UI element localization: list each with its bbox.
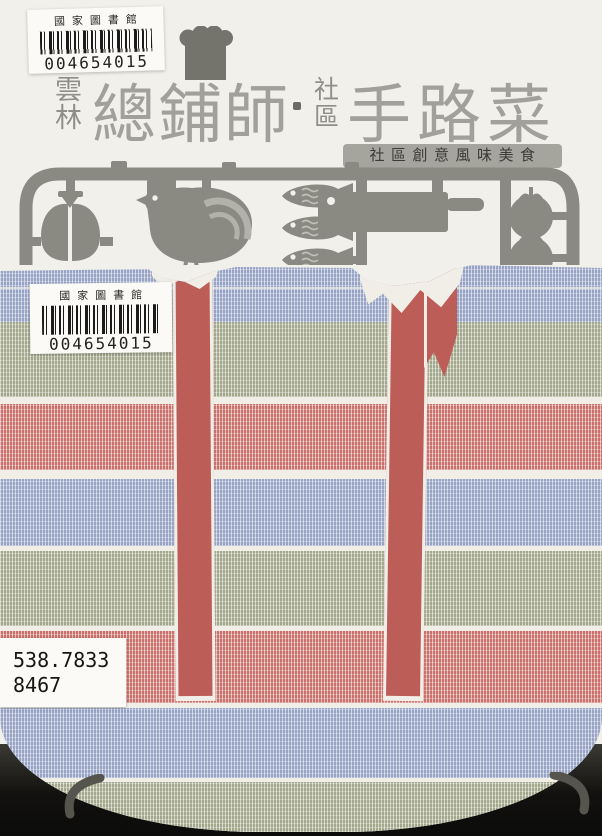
call-number-author: 8467 xyxy=(13,673,126,698)
cleaver-icon xyxy=(318,178,484,232)
separator-dot xyxy=(293,102,301,110)
bag-strap-left xyxy=(172,265,215,701)
rooster-icon xyxy=(136,171,252,278)
region-char-1: 雲 xyxy=(55,76,82,104)
bag-strap-right xyxy=(383,265,429,701)
bag-body: 國家圖書館 004654015 538.7833 8467 xyxy=(0,265,602,832)
tomato-icon xyxy=(505,187,568,239)
library-name-label: 國家圖書館 xyxy=(47,11,144,30)
call-number-classification: 538.7833 xyxy=(13,648,126,673)
sprue-illustration xyxy=(0,160,602,280)
barcode-image xyxy=(42,304,160,335)
cover-top-section: 國家圖書館 004654015 雲 林 總鋪師 社 區 手路菜 社區創意風味美食 xyxy=(0,0,602,265)
bag-stripe-blue xyxy=(0,708,602,778)
barcode-image xyxy=(40,28,153,54)
barcode-number: 004654015 xyxy=(49,333,154,353)
wok-handle-right-icon xyxy=(548,772,596,816)
bag-seam xyxy=(0,470,602,479)
call-number-sticker: 538.7833 8467 xyxy=(0,638,126,707)
bag-stripe-blue xyxy=(0,479,602,546)
pork-leg-icon xyxy=(30,174,113,261)
title-main-right: 手路菜 xyxy=(347,64,557,156)
community-stacked: 社 區 xyxy=(314,77,339,131)
bag-seam xyxy=(0,397,602,404)
bag-stripe-red xyxy=(0,404,602,470)
wok-handle-left-icon xyxy=(56,774,108,820)
community-char-1: 社 xyxy=(314,77,339,104)
bag-stripe-olive xyxy=(0,551,602,626)
library-name-label: 國家圖書館 xyxy=(52,286,149,303)
series-region-stacked: 雲 林 xyxy=(55,76,82,132)
region-char-2: 林 xyxy=(55,104,82,132)
book-cover: 國家圖書館 004654015 雲 林 總鋪師 社 區 手路菜 社區創意風味美食 xyxy=(0,0,602,836)
woven-bag-photo: 國家圖書館 004654015 538.7833 8467 xyxy=(0,265,602,836)
title-main-left: 總鋪師 xyxy=(92,64,290,156)
library-barcode-sticker-bag: 國家圖書館 004654015 xyxy=(30,282,173,354)
community-char-2: 區 xyxy=(314,104,339,131)
